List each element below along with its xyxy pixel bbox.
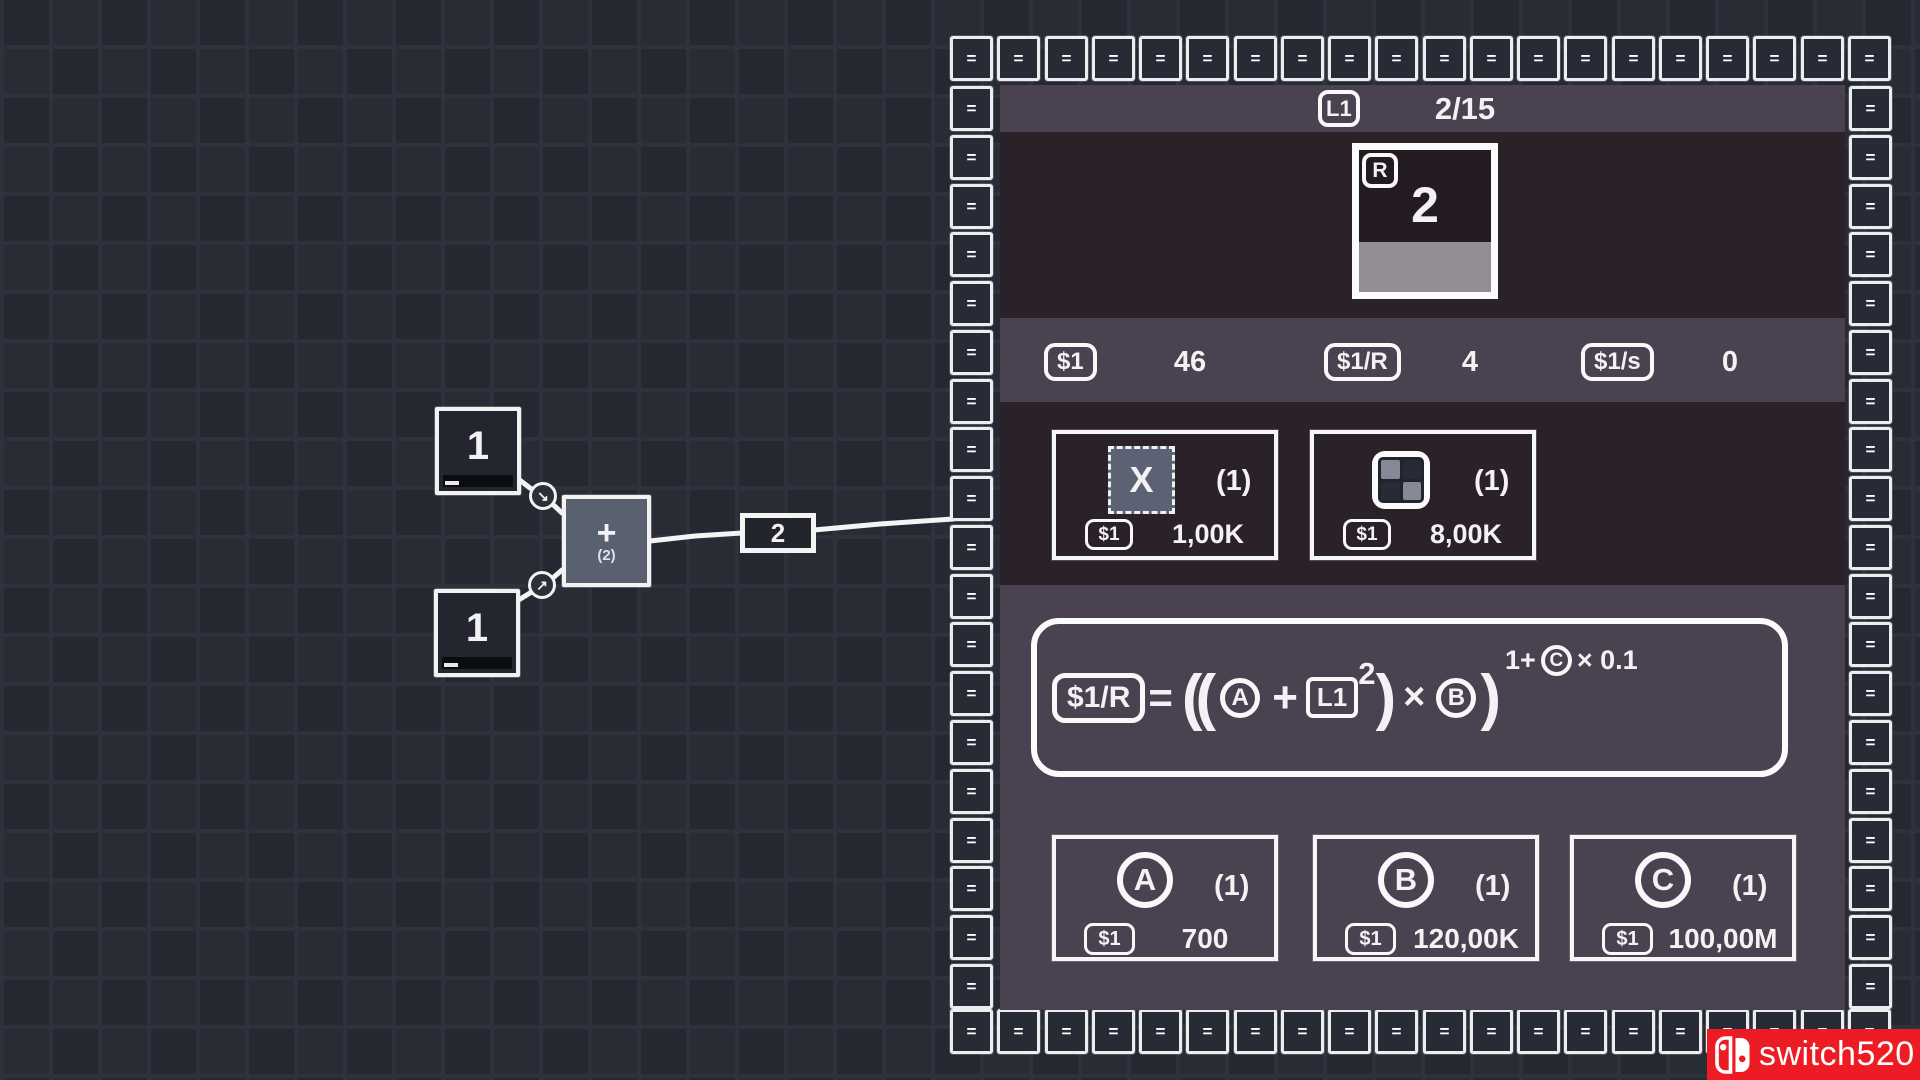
formula-equals: = (1148, 674, 1173, 722)
frame-tile: = (1849, 232, 1892, 277)
reactor-box[interactable]: R 2 (1352, 143, 1498, 299)
frame-tile: = (950, 818, 993, 863)
source-node-buffer-bar (443, 475, 513, 487)
x-icon-letter: X (1129, 459, 1153, 501)
frame-tile: = (1612, 36, 1655, 81)
frame-tile: = (1281, 1009, 1324, 1054)
frame-tile: = (1849, 866, 1892, 911)
frame-tile: = (1848, 36, 1891, 81)
source-node-top[interactable]: 1 (435, 407, 521, 495)
frame-tile: = (1849, 427, 1892, 472)
currency-badge-per-reset: $1/R (1324, 343, 1401, 381)
exponent-prefix: 1+ (1505, 645, 1536, 676)
frame-tile: = (1849, 86, 1892, 131)
frame-tile: = (1517, 36, 1560, 81)
frame-tile: = (950, 720, 993, 765)
variable-c-icon: C (1541, 645, 1572, 676)
frame-tile: = (950, 476, 993, 521)
badge-text: $1 (1098, 928, 1120, 951)
grid-icon-inner (1378, 457, 1424, 503)
reactor-badge-text: R (1372, 159, 1387, 183)
variable-card-c[interactable]: C (1) $1 100,00M (1570, 835, 1796, 961)
frame-tile: = (1139, 36, 1182, 81)
frame-tile: = (1092, 1009, 1135, 1054)
frame-tile: = (1186, 1009, 1229, 1054)
frame-tile: = (1849, 671, 1892, 716)
frame-tile: = (1375, 36, 1418, 81)
frame-tile: = (1849, 476, 1892, 521)
watermark-text: switch520 (1759, 1035, 1915, 1074)
arrow-glyph: ↘ (537, 488, 549, 505)
formula-outer-close-paren: ) (1480, 668, 1501, 728)
variable-card-a[interactable]: A (1) $1 700 (1052, 835, 1278, 961)
frame-tile: = (950, 866, 993, 911)
variable-card-b[interactable]: B (1) $1 120,00K (1313, 835, 1539, 961)
frame-tile: = (1849, 964, 1892, 1009)
reactor-progress-fill (1359, 242, 1491, 292)
upgrade-card-multiplier[interactable]: X (1) $1 1,00K (1052, 430, 1278, 560)
frame-tile: = (950, 184, 993, 229)
frame-tile: = (1659, 1009, 1702, 1054)
formula-box: $1/R = (( A + L1 2 ) × B ) 1+ C × 0.1 (1031, 618, 1788, 777)
badge-text: $1 (1616, 928, 1638, 951)
badge-text: $1/s (1594, 348, 1641, 376)
currency-badge-money: $1 (1044, 343, 1097, 381)
source-node-bottom[interactable]: 1 (434, 589, 520, 677)
grid-cell (1381, 460, 1400, 479)
formula-open-parens: (( (1182, 668, 1216, 728)
frame-tile: = (1849, 330, 1892, 375)
formula-plus: + (1272, 673, 1298, 723)
wire-adder-to-label (650, 533, 742, 541)
formula-level-badge: L1 (1306, 677, 1358, 718)
source-node-buffer-bar (442, 657, 512, 669)
cost-currency-badge: $1 (1345, 923, 1396, 955)
watermark: switch520 (1707, 1029, 1920, 1080)
grid-cell (1403, 460, 1422, 479)
frame-tile: = (1849, 184, 1892, 229)
variable-c-icon: C (1635, 852, 1691, 908)
level-progress: 2/15 (1415, 91, 1515, 127)
frame-tile: = (950, 379, 993, 424)
frame-tile: = (1045, 36, 1088, 81)
frame-tile: = (1375, 1009, 1418, 1054)
frame-tile: = (997, 36, 1040, 81)
variable-cost: 100,00M (1659, 923, 1787, 955)
badge-text: $1 (1098, 524, 1119, 546)
switch-logo-icon (1714, 1035, 1754, 1075)
variable-b-icon: B (1378, 852, 1434, 908)
frame-tile: = (1849, 769, 1892, 814)
frame-tile: = (1849, 525, 1892, 570)
frame-tile: = (950, 671, 993, 716)
frame-tile: = (997, 1009, 1040, 1054)
frame-tile: = (950, 135, 993, 180)
frame-tile: = (1045, 1009, 1088, 1054)
frame-tile: = (1423, 36, 1466, 81)
frame-tile: = (950, 1009, 993, 1054)
variable-b-icon: B (1436, 678, 1476, 718)
frame-tile: = (1849, 574, 1892, 619)
adder-operator: + (597, 519, 617, 547)
frame-tile: = (1139, 1009, 1182, 1054)
upgrade-count: (1) (1474, 465, 1509, 498)
frame-tile: = (1849, 720, 1892, 765)
variable-count: (1) (1214, 870, 1249, 903)
frame-tile: = (1234, 1009, 1277, 1054)
buffer-tick (445, 481, 459, 485)
grid-cell (1403, 482, 1422, 501)
source-node-value: 1 (467, 424, 489, 469)
frame-tile: = (1849, 622, 1892, 667)
frame-tile: = (1328, 1009, 1371, 1054)
formula-lhs-badge: $1/R (1052, 673, 1145, 723)
frame-tile: = (950, 964, 993, 1009)
reactor-badge: R (1362, 153, 1398, 188)
game-screen: { "colors": { "page_bg_cell_a": "#282c35… (0, 0, 1920, 1080)
upgrade-card-grid[interactable]: (1) $1 8,00K (1310, 430, 1536, 560)
upgrade-cost: 8,00K (1406, 519, 1526, 550)
frame-tile: = (1423, 1009, 1466, 1054)
level-badge-text: L1 (1326, 96, 1352, 122)
adder-buffer: (2) (597, 547, 615, 564)
frame-tile: = (950, 36, 993, 81)
badge-text: $1 (1057, 348, 1084, 376)
variable-a-icon: A (1220, 678, 1260, 718)
buffer-tick (444, 663, 458, 667)
frame-tile: = (1328, 36, 1371, 81)
frame-tile: = (1517, 1009, 1560, 1054)
frame-tile: = (1849, 281, 1892, 326)
currency-value-money: 46 (1148, 346, 1232, 379)
frame-tile: = (950, 427, 993, 472)
wire-throughput-value: 2 (771, 518, 785, 549)
frame-tile: = (1849, 135, 1892, 180)
frame-tile: = (1753, 36, 1796, 81)
upgrade-cost: 1,00K (1148, 519, 1268, 550)
frame-tile: = (950, 281, 993, 326)
frame-tile: = (950, 574, 993, 619)
grid-cell (1381, 482, 1400, 501)
machine-panel: L1 2/15 R 2 $1 46 $1/R 4 $1/s 0 X (1) $1… (1000, 85, 1845, 1010)
variable-count: (1) (1732, 870, 1767, 903)
level-badge: L1 (1318, 90, 1360, 127)
variable-count: (1) (1475, 870, 1510, 903)
currency-value-per-second: 0 (1688, 346, 1772, 379)
cost-currency-badge: $1 (1602, 923, 1653, 955)
frame-tile: = (950, 915, 993, 960)
source-node-value: 1 (466, 606, 488, 651)
frame-tile: = (1470, 36, 1513, 81)
badge-text: $1/R (1337, 348, 1388, 376)
variable-a-icon: A (1117, 852, 1173, 908)
formula-exponent: 1+ C × 0.1 (1505, 645, 1638, 676)
frame-tile: = (1849, 818, 1892, 863)
frame-tile: = (1801, 36, 1844, 81)
formula-level-exponent: 2 (1358, 656, 1375, 692)
cost-currency-badge: $1 (1084, 923, 1135, 955)
connector-arrow-top-icon[interactable]: ↘ (529, 482, 557, 510)
connector-arrow-bottom-icon[interactable]: ↗ (528, 571, 556, 599)
wire-label-to-panel (814, 519, 953, 530)
currency-value-per-reset: 4 (1428, 346, 1512, 379)
badge-text: $1 (1359, 928, 1381, 951)
exponent-suffix: × 0.1 (1577, 645, 1638, 676)
x-multiplier-icon: X (1108, 446, 1175, 514)
cost-currency-badge: $1 (1085, 519, 1133, 550)
frame-tile: = (950, 232, 993, 277)
frame-tile: = (1234, 36, 1277, 81)
frame-tile: = (1281, 36, 1324, 81)
frame-tile: = (950, 769, 993, 814)
arrow-glyph: ↗ (536, 577, 548, 594)
frame-tile: = (1092, 36, 1135, 81)
frame-tile: = (1659, 36, 1702, 81)
frame-tile: = (1564, 36, 1607, 81)
frame-tile: = (1849, 379, 1892, 424)
frame-tile: = (950, 622, 993, 667)
formula-inner-close-paren: ) (1376, 668, 1397, 728)
letter: A (1134, 862, 1156, 898)
letter: C (1652, 862, 1674, 898)
formula-multiply: × (1403, 676, 1425, 719)
letter: B (1395, 862, 1417, 898)
currency-badge-per-second: $1/s (1581, 343, 1654, 381)
currency-row: $1 46 $1/R 4 $1/s 0 (1000, 318, 1845, 402)
frame-tile: = (1612, 1009, 1655, 1054)
wire-throughput-label: 2 (740, 513, 816, 553)
formula-section: $1/R = (( A + L1 2 ) × B ) 1+ C × 0.1 A … (1000, 585, 1845, 1010)
wire-layer (0, 0, 960, 1080)
variable-cost: 700 (1141, 923, 1269, 955)
variable-cost: 120,00K (1402, 923, 1530, 955)
badge-text: $1 (1356, 524, 1377, 546)
frame-tile: = (1564, 1009, 1607, 1054)
grid-expand-icon (1372, 451, 1430, 509)
frame-tile: = (1706, 36, 1749, 81)
upgrade-count: (1) (1216, 465, 1251, 498)
frame-tile: = (1470, 1009, 1513, 1054)
frame-tile: = (1849, 915, 1892, 960)
frame-tile: = (950, 525, 993, 570)
adder-node[interactable]: + (2) (562, 495, 651, 587)
frame-tile: = (950, 330, 993, 375)
panel-header: L1 2/15 (1000, 85, 1845, 132)
frame-tile: = (950, 86, 993, 131)
frame-tile: = (1186, 36, 1229, 81)
cost-currency-badge: $1 (1343, 519, 1391, 550)
